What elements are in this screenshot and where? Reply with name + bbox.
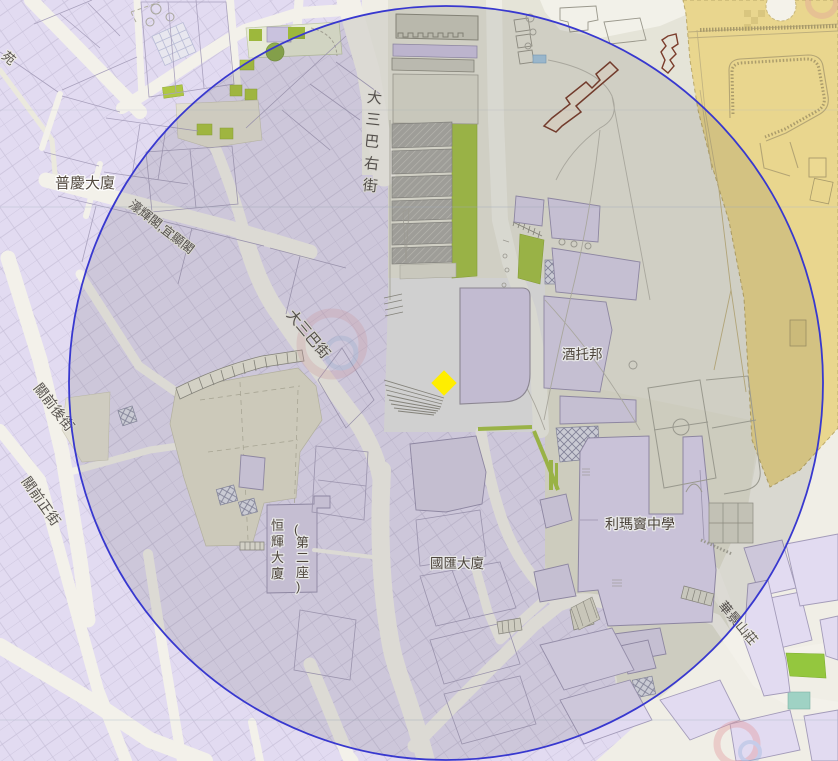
svg-text:普慶大廈: 普慶大廈 xyxy=(55,174,115,192)
